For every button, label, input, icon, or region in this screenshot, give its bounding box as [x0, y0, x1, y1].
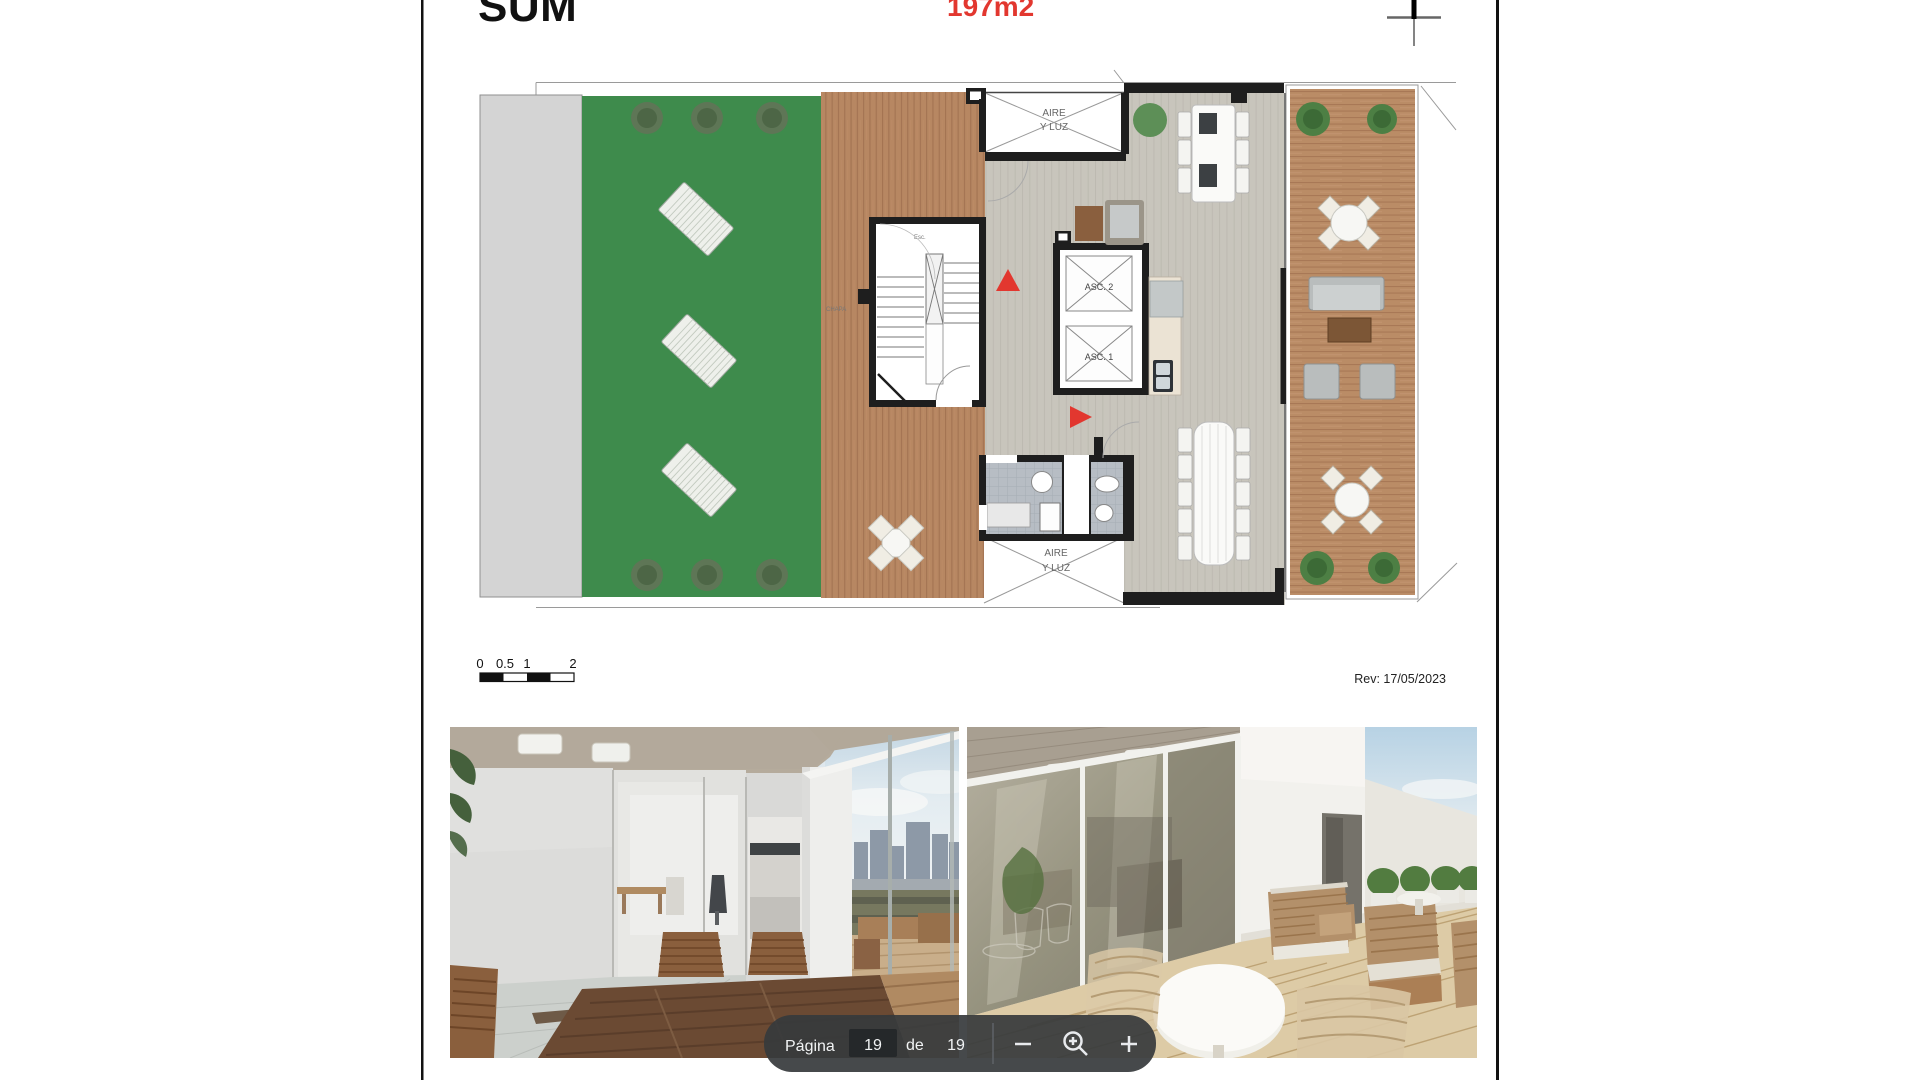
svg-text:197m2: 197m2 [947, 0, 1034, 22]
svg-text:19: 19 [864, 1037, 882, 1054]
svg-text:2: 2 [569, 656, 576, 671]
svg-text:AIRE: AIRE [1042, 108, 1066, 119]
svg-text:Página: Página [785, 1038, 835, 1055]
svg-text:AIRE: AIRE [1044, 548, 1068, 559]
svg-text:ASC. 1: ASC. 1 [1085, 352, 1114, 362]
svg-text:0.5: 0.5 [496, 656, 514, 671]
svg-text:1: 1 [523, 656, 530, 671]
svg-text:de: de [906, 1037, 924, 1054]
svg-text:CHAPA: CHAPA [826, 307, 846, 313]
svg-text:Y LUZ: Y LUZ [1042, 563, 1070, 574]
svg-text:SUM: SUM [478, 0, 577, 31]
svg-text:19: 19 [947, 1037, 965, 1054]
svg-text:ASC. 2: ASC. 2 [1085, 282, 1114, 292]
svg-text:Y LUZ: Y LUZ [1040, 122, 1068, 133]
svg-text:0: 0 [476, 656, 483, 671]
svg-text:Esc.: Esc. [914, 235, 926, 241]
svg-text:Rev: 17/05/2023: Rev: 17/05/2023 [1354, 672, 1446, 686]
